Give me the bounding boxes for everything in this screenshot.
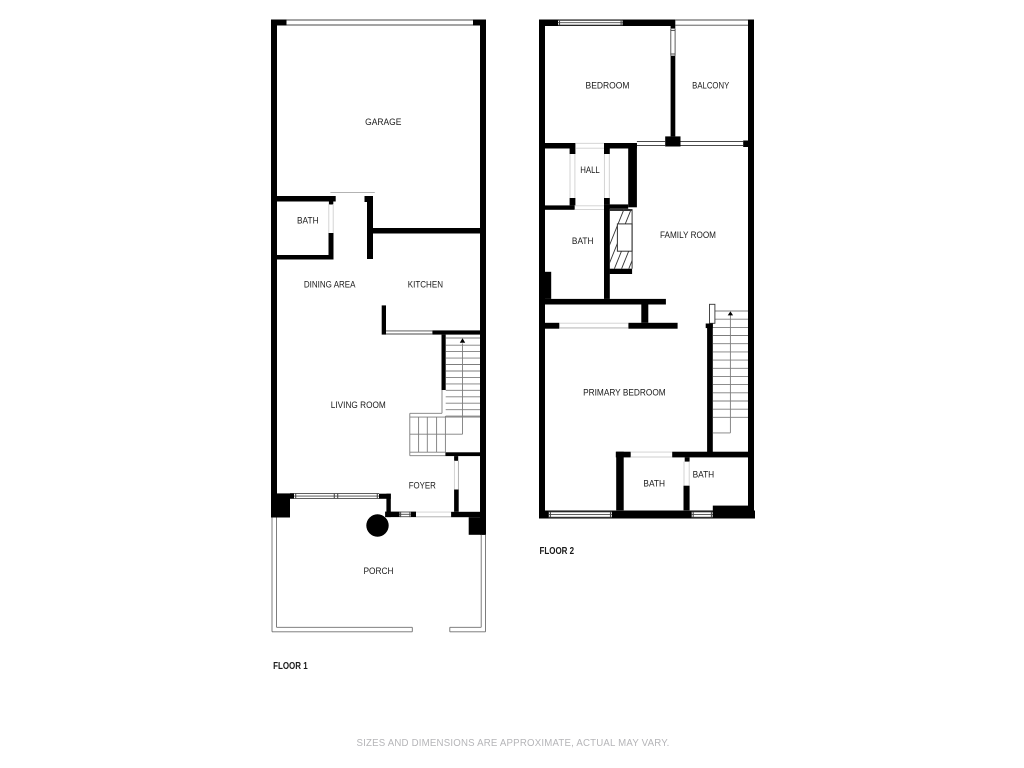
svg-text:KITCHEN: KITCHEN <box>408 280 443 290</box>
svg-text:FLOOR 2: FLOOR 2 <box>540 546 575 557</box>
svg-text:BEDROOM: BEDROOM <box>586 81 630 91</box>
svg-text:BATH: BATH <box>572 236 594 246</box>
svg-text:FAMILY ROOM: FAMILY ROOM <box>660 230 716 240</box>
svg-text:FLOOR 1: FLOOR 1 <box>273 661 308 672</box>
svg-text:BATH: BATH <box>643 478 665 488</box>
svg-text:DINING AREA: DINING AREA <box>304 280 356 290</box>
svg-text:BALCONY: BALCONY <box>692 80 729 90</box>
svg-text:SIZES AND DIMENSIONS ARE APPRO: SIZES AND DIMENSIONS ARE APPROXIMATE, AC… <box>357 738 670 749</box>
svg-text:LIVING ROOM: LIVING ROOM <box>331 400 386 410</box>
svg-text:HALL: HALL <box>580 165 600 175</box>
svg-text:PRIMARY BEDROOM: PRIMARY BEDROOM <box>583 388 666 398</box>
svg-text:BATH: BATH <box>297 216 319 226</box>
svg-text:BATH: BATH <box>693 470 715 480</box>
svg-text:GARAGE: GARAGE <box>365 117 401 127</box>
svg-text:FOYER: FOYER <box>409 481 437 491</box>
svg-text:PORCH: PORCH <box>363 566 393 576</box>
